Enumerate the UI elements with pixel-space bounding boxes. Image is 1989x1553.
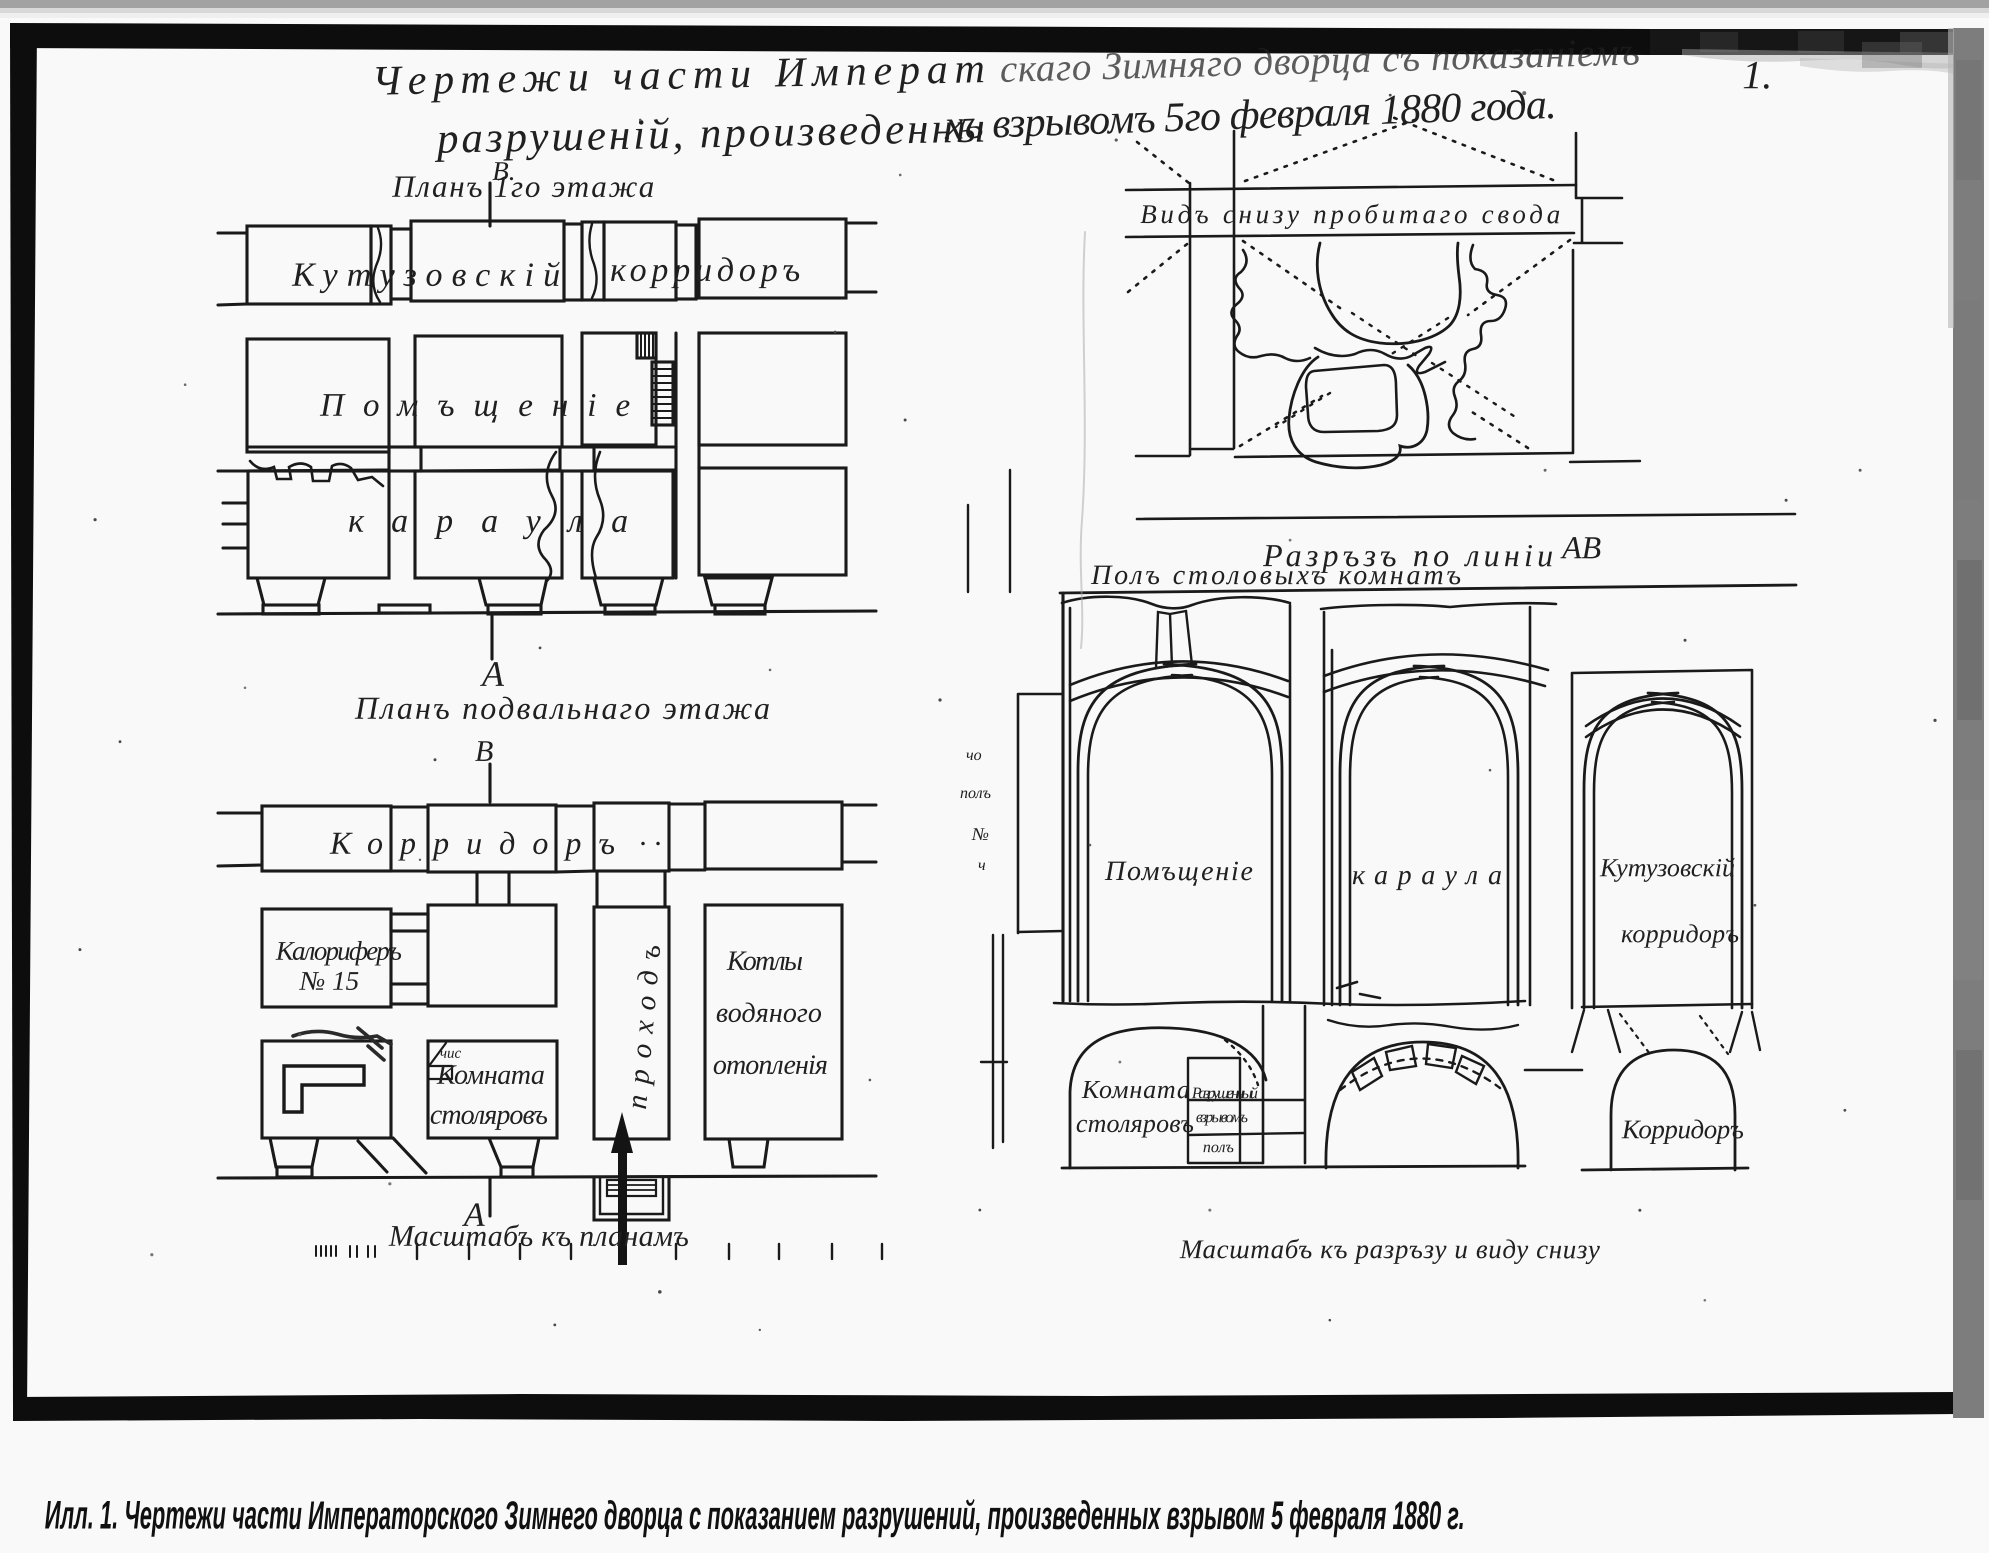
svg-text:Разрушенный: Разрушенный — [1191, 1085, 1258, 1102]
svg-text:Корридоръ: Корридоръ — [329, 825, 615, 861]
svg-text:Калориферъ: Калориферъ — [275, 936, 402, 966]
svg-text:Планъ подвальнаго этажа: Планъ подвальнаго этажа — [354, 690, 770, 726]
svg-text:АВ: АВ — [1560, 529, 1601, 565]
svg-text:№: № — [971, 824, 989, 844]
svg-text:полъ: полъ — [1203, 1139, 1234, 1156]
svg-text:взрывомъ: взрывомъ — [1196, 1109, 1248, 1126]
svg-text:Кутузовскій: Кутузовскій — [1599, 853, 1735, 882]
svg-text:№ 15: № 15 — [299, 966, 359, 996]
svg-text:корридоръ: корридоръ — [610, 252, 800, 289]
svg-text:Помъщеніе: Помъщеніе — [1104, 856, 1253, 887]
svg-text:водяного: водяного — [716, 998, 822, 1029]
svg-text:столяровъ: столяровъ — [1076, 1109, 1194, 1138]
svg-text:1.: 1. — [1742, 52, 1772, 97]
svg-text:Корридоръ: Корридоръ — [1621, 1114, 1744, 1144]
svg-text:корридоръ: корридоръ — [1621, 919, 1739, 948]
svg-text:В: В — [475, 735, 493, 768]
svg-text:Комната: Комната — [436, 1060, 545, 1091]
svg-text:отопленія: отопленія — [713, 1050, 828, 1081]
svg-text:полъ: полъ — [960, 785, 991, 802]
svg-text:ч: ч — [978, 857, 986, 874]
svg-text:Видъ снизу пробитаго свода: Видъ снизу пробитаго свода — [1140, 199, 1560, 229]
svg-text:. .: . . — [640, 819, 663, 852]
svg-text:Масштабъ къ планамъ: Масштабъ къ планамъ — [388, 1220, 689, 1253]
svg-text:чо: чо — [966, 747, 982, 764]
svg-text:Илл. 1. Чертежи части Императо: Илл. 1. Чертежи части Императорского Зим… — [45, 1494, 1465, 1538]
svg-text:чис: чис — [440, 1046, 462, 1062]
svg-text:Комната: Комната — [1081, 1075, 1190, 1104]
svg-text:В.: В. — [492, 156, 515, 186]
svg-text:А: А — [480, 654, 505, 694]
svg-text:Масштабъ къ разръзу и виду сни: Масштабъ къ разръзу и виду снизу — [1179, 1234, 1600, 1264]
svg-text:Котлы: Котлы — [726, 946, 803, 977]
svg-text:столяровъ: столяровъ — [430, 1100, 548, 1131]
